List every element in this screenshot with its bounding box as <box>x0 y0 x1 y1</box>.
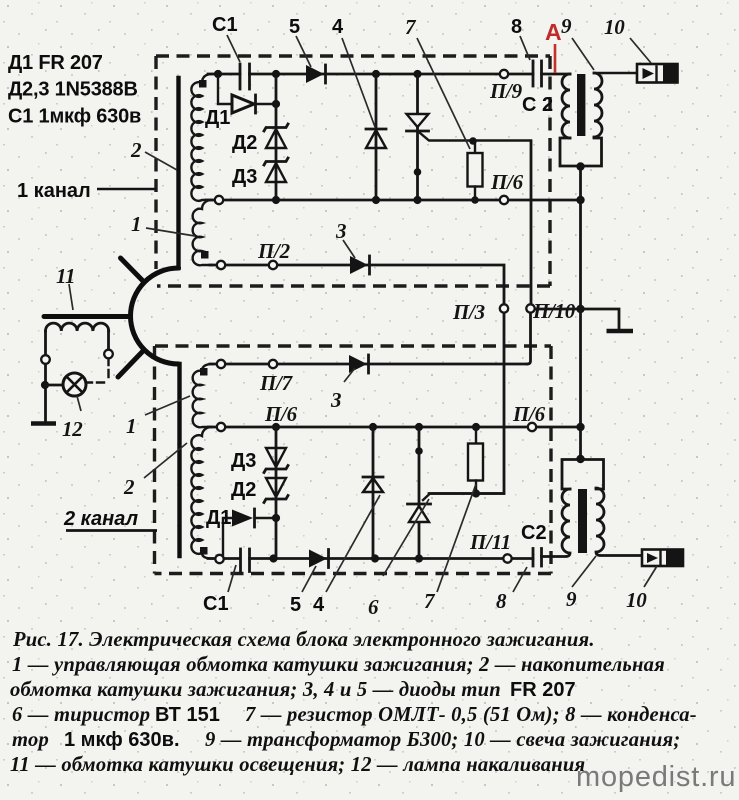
svg-text:4: 4 <box>332 16 344 38</box>
svg-text:2: 2 <box>130 138 142 162</box>
svg-text:10: 10 <box>604 15 625 39</box>
svg-text:10: 10 <box>626 588 647 612</box>
svg-text:11: 11 <box>56 264 75 288</box>
svg-text:9 — трансформатор Б300; 10 —: 9 — трансформатор Б300; 10 — свеча зажиг… <box>205 729 680 751</box>
svg-text:9: 9 <box>561 14 572 38</box>
svg-text:С2: С2 <box>521 522 547 544</box>
svg-text:А: А <box>545 19 562 45</box>
svg-text:П/11: П/11 <box>469 530 511 554</box>
svg-text:Рис. 17. Электрическая схема б: Рис. 17. Электрическая схема блока элект… <box>12 629 595 651</box>
svg-text:5: 5 <box>290 594 301 616</box>
svg-text:Д2: Д2 <box>232 132 257 154</box>
svg-text:П/6: П/6 <box>512 402 546 426</box>
svg-text:12: 12 <box>62 417 83 441</box>
svg-text:6 — тиристор: 6 — тиристор <box>12 704 150 726</box>
svg-text:тор: тор <box>12 729 49 751</box>
svg-text:1 канал: 1 канал <box>17 180 91 202</box>
svg-text:2: 2 <box>123 475 135 499</box>
svg-text:4: 4 <box>313 594 325 616</box>
svg-text:FR 207: FR 207 <box>510 679 576 701</box>
svg-text:Д2: Д2 <box>231 479 256 501</box>
svg-text:С1: С1 <box>203 593 229 615</box>
svg-text:9: 9 <box>566 587 577 611</box>
svg-text:обмотка катушки зажигания; 3,: обмотка катушки зажигания; 3, 4 и 5 — ди… <box>10 679 501 701</box>
svg-text:7: 7 <box>424 589 436 613</box>
svg-text:1 — управляющая обмотка катушк: 1 — управляющая обмотка катушки зажигани… <box>12 654 665 676</box>
svg-text:П/7: П/7 <box>259 371 294 395</box>
svg-text:Д3: Д3 <box>231 450 256 472</box>
svg-text:Д2,3 1N5388В: Д2,3 1N5388В <box>8 79 138 101</box>
svg-text:Д3: Д3 <box>232 166 257 188</box>
svg-text:3: 3 <box>335 219 346 243</box>
svg-text:8: 8 <box>511 16 522 38</box>
svg-text:С 2: С 2 <box>522 94 553 116</box>
svg-text:Д1: Д1 <box>206 507 231 529</box>
svg-text:ВТ 151: ВТ 151 <box>155 704 220 726</box>
svg-text:1: 1 <box>131 212 141 236</box>
svg-text:С1: С1 <box>212 14 238 36</box>
svg-text:6: 6 <box>368 595 379 619</box>
svg-text:2 канал: 2 канал <box>63 508 139 530</box>
svg-text:7: 7 <box>405 15 417 39</box>
svg-text:П/10: П/10 <box>532 299 576 323</box>
svg-text:Д1: Д1 <box>205 107 230 129</box>
svg-text:5: 5 <box>289 16 300 38</box>
svg-text:Д1 FR 207: Д1 FR 207 <box>8 52 103 74</box>
svg-text:С1 1мкф 630в: С1 1мкф 630в <box>8 106 141 128</box>
svg-text:3: 3 <box>330 388 341 412</box>
svg-text:П/6: П/6 <box>490 170 524 194</box>
svg-text:П/9: П/9 <box>489 79 523 103</box>
svg-text:mopedist.ru: mopedist.ru <box>576 761 736 793</box>
svg-text:11 — обмотка катушки освещения: 11 — обмотка катушки освещения; 12 — лам… <box>10 754 585 776</box>
svg-text:1: 1 <box>126 414 136 438</box>
svg-text:П/3: П/3 <box>452 300 485 324</box>
svg-text:П/2: П/2 <box>257 239 291 263</box>
svg-text:П/6: П/6 <box>264 402 298 426</box>
svg-text:8: 8 <box>496 589 507 613</box>
svg-text:7 — резистор ОМЛТ- 0,5 (51 Ом): 7 — резистор ОМЛТ- 0,5 (51 Ом); 8 — конд… <box>245 704 697 726</box>
svg-text:1 мкф 630в.: 1 мкф 630в. <box>64 729 180 751</box>
